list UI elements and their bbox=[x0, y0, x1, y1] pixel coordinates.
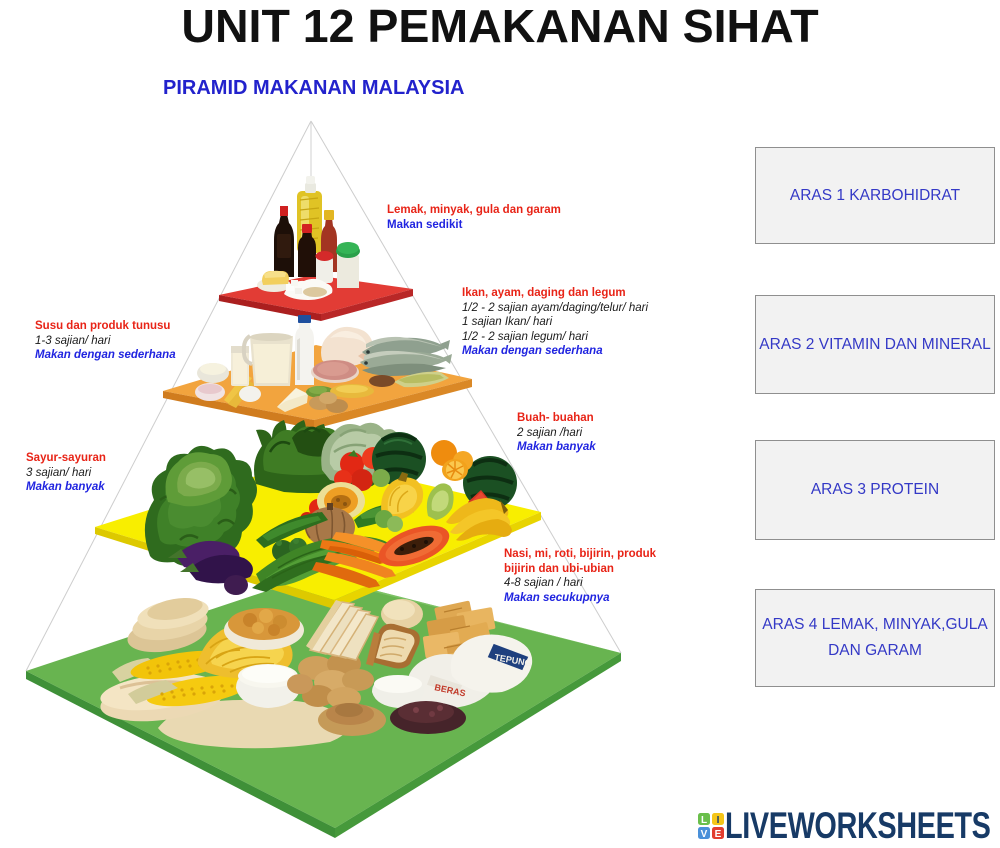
svg-text:L: L bbox=[701, 815, 707, 826]
svg-text:V: V bbox=[701, 829, 708, 840]
svg-text:I: I bbox=[717, 815, 720, 826]
svg-text:E: E bbox=[715, 829, 722, 840]
